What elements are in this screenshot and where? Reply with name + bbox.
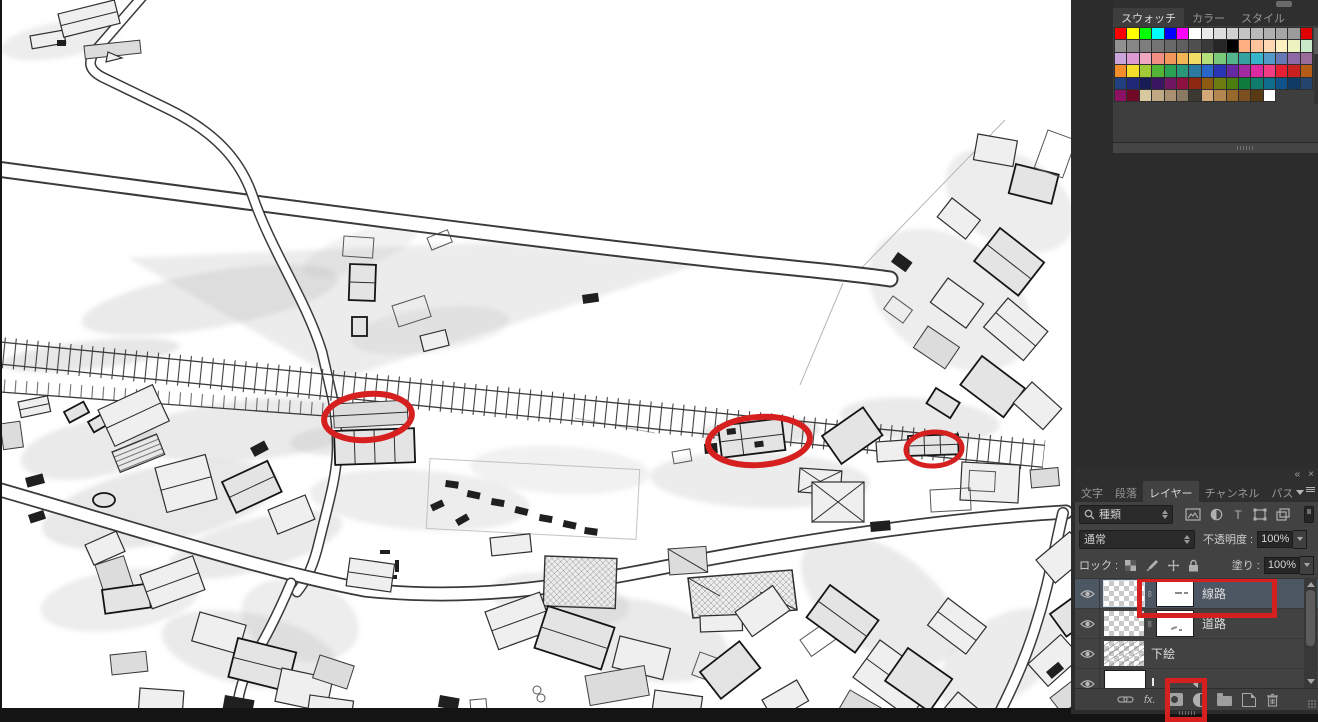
swatch[interactable] <box>1152 90 1163 101</box>
swatch[interactable] <box>1127 40 1138 51</box>
delete-layer-trash-icon[interactable] <box>1266 693 1279 707</box>
mask-circle-icon <box>1171 696 1178 703</box>
swatch[interactable] <box>1127 78 1138 89</box>
lock-label: ロック : <box>1079 557 1118 573</box>
dropdown-spinner-icon <box>1158 510 1168 519</box>
swatch[interactable] <box>1165 65 1176 76</box>
window-left-edge <box>0 0 2 708</box>
fill-value[interactable]: 100% <box>1264 557 1300 574</box>
swatch[interactable] <box>1288 78 1299 89</box>
swatch[interactable] <box>1115 90 1126 101</box>
lock-position-move-icon[interactable] <box>1167 559 1180 572</box>
opacity-value[interactable]: 100% <box>1257 531 1293 548</box>
swatch[interactable] <box>1202 65 1213 76</box>
swatch[interactable] <box>1152 65 1163 76</box>
swatch[interactable] <box>1152 28 1163 39</box>
swatches-tabs: スウォッチ カラー スタイル <box>1113 8 1318 26</box>
visibility-toggle[interactable] <box>1075 639 1100 668</box>
swatch[interactable] <box>1127 65 1138 76</box>
swatch[interactable] <box>1239 78 1250 89</box>
search-icon <box>1084 509 1095 520</box>
swatches-scrollbar[interactable] <box>1314 28 1318 104</box>
swatch[interactable] <box>1202 28 1213 39</box>
swatch[interactable] <box>1227 65 1238 76</box>
layer-list: ∞ 線路 ∞ 道路 <box>1075 579 1318 688</box>
swatch[interactable] <box>1227 78 1238 89</box>
swatch[interactable] <box>1140 65 1151 76</box>
swatch[interactable] <box>1301 78 1312 89</box>
panel-dock: スウォッチ カラー スタイル « × 文字 段落 レイヤー チャンネル パス <box>1071 0 1318 714</box>
layer-thumbnail[interactable] <box>1104 581 1144 606</box>
eye-icon <box>1080 619 1095 629</box>
swatch[interactable] <box>1251 65 1262 76</box>
visibility-toggle[interactable] <box>1075 609 1100 638</box>
swatch[interactable] <box>1276 78 1287 89</box>
swatch[interactable] <box>1177 78 1188 89</box>
swatch[interactable] <box>1140 53 1151 64</box>
swatch[interactable] <box>1239 28 1250 39</box>
canvas-artwork[interactable] <box>0 0 1071 708</box>
visibility-toggle[interactable] <box>1075 579 1100 608</box>
swatch[interactable] <box>1189 53 1200 64</box>
scroll-down-icon[interactable] <box>1307 679 1315 684</box>
filter-pixel-layers-icon[interactable] <box>1185 508 1201 521</box>
eye-icon <box>1080 679 1095 689</box>
thumbnail-sketch-content <box>1104 641 1144 666</box>
swatch[interactable] <box>1264 40 1275 51</box>
filter-adjustment-layers-icon[interactable] <box>1210 508 1223 521</box>
add-layer-mask-button[interactable] <box>1166 693 1183 706</box>
layer-name[interactable]: 下絵 <box>1151 645 1175 662</box>
swatch[interactable] <box>1140 40 1151 51</box>
swatch[interactable] <box>1264 65 1275 76</box>
collapse-panel-icon[interactable]: « <box>1295 468 1301 481</box>
swatches-panel-header <box>1113 0 1318 8</box>
layer-name[interactable]: 線路 <box>1202 585 1226 602</box>
eye-icon <box>1080 589 1095 599</box>
swatch[interactable] <box>1140 28 1151 39</box>
swatch[interactable] <box>1214 65 1225 76</box>
new-adjustment-layer-button[interactable] <box>1193 693 1207 707</box>
eye-icon <box>1080 649 1095 659</box>
swatch[interactable] <box>1276 28 1287 39</box>
swatch[interactable] <box>1301 40 1312 51</box>
opacity-label: 不透明度 : <box>1203 531 1253 547</box>
swatch[interactable] <box>1140 90 1151 101</box>
swatch[interactable] <box>1227 53 1238 64</box>
swatch[interactable] <box>1152 40 1163 51</box>
swatch[interactable] <box>1288 40 1299 51</box>
swatch[interactable] <box>1189 65 1200 76</box>
lock-all-padlock-icon[interactable] <box>1188 559 1199 572</box>
swatch[interactable] <box>1115 28 1126 39</box>
swatch[interactable] <box>1264 78 1275 89</box>
swatch[interactable] <box>1276 65 1287 76</box>
swatch[interactable] <box>1239 53 1250 64</box>
swatch <box>1301 90 1312 101</box>
mask-link-icon[interactable]: ∞ <box>1145 618 1155 630</box>
swatch[interactable] <box>1140 78 1151 89</box>
swatch[interactable] <box>1127 28 1138 39</box>
swatch[interactable] <box>1276 40 1287 51</box>
layers-panel-header: « × <box>1075 468 1318 481</box>
swatch[interactable] <box>1251 28 1262 39</box>
swatch[interactable] <box>1177 90 1188 101</box>
partial-mask-edge <box>1152 678 1154 686</box>
layer-filter-row: 種類 T <box>1075 502 1318 526</box>
lock-row: ロック : 塗り : 100% <box>1075 552 1318 578</box>
mask-link-icon[interactable]: ∞ <box>1145 588 1155 600</box>
close-panel-icon[interactable]: × <box>1308 468 1314 481</box>
visibility-toggle[interactable] <box>1075 669 1100 688</box>
swatch[interactable] <box>1165 28 1176 39</box>
swatch[interactable] <box>1239 90 1250 101</box>
blend-mode-row: 通常 不透明度 : 100% <box>1075 526 1318 552</box>
layers-panel-footer <box>1075 710 1318 714</box>
layer-row-senro[interactable]: ∞ 線路 <box>1075 579 1318 609</box>
swatch[interactable] <box>1288 28 1299 39</box>
swatch[interactable] <box>1264 28 1275 39</box>
filter-shape-layers-icon[interactable] <box>1253 508 1267 521</box>
swatch[interactable] <box>1177 40 1188 51</box>
swatch[interactable] <box>1288 65 1299 76</box>
new-layer-button[interactable] <box>1242 693 1256 707</box>
layer-mask-thumbnail[interactable] <box>1156 580 1194 607</box>
panel-resize-grip-icon[interactable] <box>1179 711 1195 715</box>
layers-panel-content: 種類 T 通常 不透明度 : 100% <box>1075 502 1318 688</box>
swatch[interactable] <box>1227 28 1238 39</box>
swatch[interactable] <box>1214 40 1225 51</box>
tab-swatches[interactable]: スウォッチ <box>1113 8 1184 26</box>
swatch[interactable] <box>1301 28 1312 39</box>
layer-row-shitae[interactable]: 下絵 <box>1075 639 1318 669</box>
new-group-folder-icon[interactable] <box>1217 696 1232 706</box>
link-layers-icon[interactable] <box>1117 695 1134 704</box>
filter-smart-objects-icon[interactable] <box>1276 508 1290 521</box>
layer-thumbnail[interactable] <box>1104 670 1146 688</box>
tab-layers[interactable]: レイヤー <box>1143 481 1199 502</box>
layers-panel: « × 文字 段落 レイヤー チャンネル パス 種類 T <box>1075 468 1318 714</box>
swatch[interactable] <box>1214 78 1225 89</box>
layer-style-fx-button[interactable]: fx. <box>1144 694 1156 706</box>
swatch <box>1288 90 1299 101</box>
scroll-up-icon[interactable] <box>1307 582 1315 587</box>
swatches-panel-footer <box>1113 142 1318 153</box>
swatch[interactable] <box>1214 53 1225 64</box>
swatch[interactable] <box>1115 65 1126 76</box>
swatches-body <box>1113 26 1318 142</box>
swatch <box>1276 90 1287 101</box>
swatch[interactable] <box>1202 53 1213 64</box>
opacity-dropdown-icon[interactable] <box>1293 530 1307 549</box>
collapse-panel-icon[interactable] <box>1276 1 1292 7</box>
swatch[interactable] <box>1127 90 1138 101</box>
layer-filter-toggle[interactable] <box>1304 506 1314 523</box>
swatch-grid <box>1115 28 1313 101</box>
swatch[interactable] <box>1264 53 1275 64</box>
swatch[interactable] <box>1115 53 1126 64</box>
swatch[interactable] <box>1189 90 1200 101</box>
tab-character[interactable]: 文字 <box>1075 481 1109 502</box>
swatch[interactable] <box>1177 53 1188 64</box>
fill-label: 塗り : <box>1232 557 1260 573</box>
swatches-panel: スウォッチ カラー スタイル <box>1113 0 1318 150</box>
swatch[interactable] <box>1115 40 1126 51</box>
layer-name[interactable]: 道路 <box>1202 615 1226 632</box>
swatch[interactable] <box>1165 90 1176 101</box>
swatch[interactable] <box>1301 65 1312 76</box>
swatch[interactable] <box>1251 78 1262 89</box>
swatch[interactable] <box>1165 53 1176 64</box>
fill-dropdown-icon[interactable] <box>1300 556 1314 575</box>
swatch[interactable] <box>1214 28 1225 39</box>
tab-paths[interactable]: パス <box>1265 481 1299 502</box>
swatch[interactable] <box>1251 53 1262 64</box>
tab-styles[interactable]: スタイル <box>1233 8 1293 26</box>
layer-mask-thumbnail[interactable] <box>1156 610 1194 637</box>
swatch[interactable] <box>1251 40 1262 51</box>
panel-corner-grip-icon[interactable] <box>1308 700 1316 708</box>
layer-row-doro[interactable]: ∞ 道路 <box>1075 609 1318 639</box>
swatch[interactable] <box>1301 53 1312 64</box>
swatch[interactable] <box>1152 78 1163 89</box>
swatch[interactable] <box>1189 40 1200 51</box>
layers-bottom-toolbar: fx. <box>1075 688 1318 710</box>
swatch[interactable] <box>1214 90 1225 101</box>
blend-mode-dropdown[interactable]: 通常 <box>1079 530 1195 549</box>
layer-filter-kind-dropdown[interactable]: 種類 <box>1079 505 1173 524</box>
swatch[interactable] <box>1227 40 1238 51</box>
swatch[interactable] <box>1177 28 1188 39</box>
lock-pixels-brush-icon[interactable] <box>1145 559 1159 572</box>
panel-resize-grip-icon[interactable] <box>1237 146 1253 150</box>
swatch[interactable] <box>1202 78 1213 89</box>
swatch[interactable] <box>1127 53 1138 64</box>
swatch[interactable] <box>1276 53 1287 64</box>
swatch[interactable] <box>1264 90 1275 101</box>
swatch[interactable] <box>1239 40 1250 51</box>
swatch[interactable] <box>1288 53 1299 64</box>
lock-transparency-icon[interactable] <box>1124 559 1137 572</box>
swatch[interactable] <box>1227 90 1238 101</box>
swatch[interactable] <box>1165 40 1176 51</box>
swatch[interactable] <box>1165 78 1176 89</box>
swatch[interactable] <box>1152 53 1163 64</box>
blend-mode-value: 通常 <box>1084 531 1106 547</box>
tab-paragraph[interactable]: 段落 <box>1109 481 1143 502</box>
svg-text:T: T <box>1234 508 1242 521</box>
swatch[interactable] <box>1202 90 1213 101</box>
swatch[interactable] <box>1177 65 1188 76</box>
layer-filter-kind-label: 種類 <box>1099 506 1121 522</box>
layers-scrollbar[interactable] <box>1304 579 1317 688</box>
scrollbar-thumb[interactable] <box>1306 590 1315 646</box>
layer-thumbnail[interactable] <box>1104 641 1144 666</box>
swatch[interactable] <box>1189 28 1200 39</box>
filter-type-layers-icon[interactable]: T <box>1232 508 1244 521</box>
layers-panel-tabs: 文字 段落 レイヤー チャンネル パス <box>1075 481 1318 502</box>
document-canvas[interactable] <box>0 0 1071 708</box>
layer-thumbnail[interactable] <box>1104 611 1144 636</box>
dropdown-spinner-icon <box>1180 535 1190 544</box>
left-arrow-icon <box>1193 680 1198 688</box>
panel-menu-icon[interactable] <box>1296 486 1315 498</box>
swatch[interactable] <box>1189 78 1200 89</box>
swatch[interactable] <box>1239 65 1250 76</box>
tab-channels[interactable]: チャンネル <box>1199 481 1266 502</box>
swatch[interactable] <box>1251 90 1262 101</box>
swatch[interactable] <box>1202 40 1213 51</box>
swatch[interactable] <box>1115 78 1126 89</box>
tab-color[interactable]: カラー <box>1184 8 1233 26</box>
